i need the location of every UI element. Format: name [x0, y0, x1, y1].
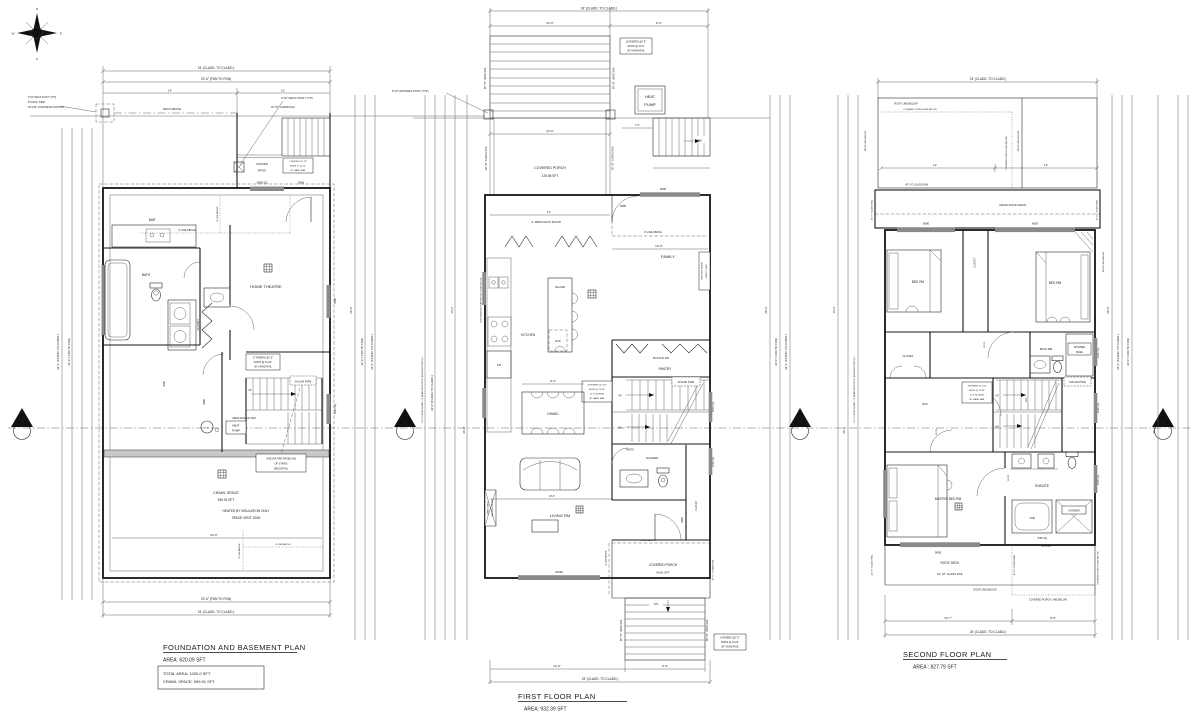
- window-band: [995, 227, 1075, 232]
- room-label-sunken: SUNKEN: [256, 162, 268, 166]
- room-label-laundry: LAUNDRY: [197, 319, 200, 331]
- roof-deck-outline: [885, 545, 1095, 595]
- speaker-icon: [588, 290, 596, 298]
- patio-stairs: [237, 118, 330, 158]
- door-tag: 3068: [298, 181, 305, 185]
- room-label-pantry: PANTRY: [659, 367, 673, 371]
- second-floor-plan: 24' (CLADD. TO CLADD.) ROOF LINE BELOW R…: [865, 77, 1105, 671]
- section-marker-a-1: A: [11, 408, 33, 440]
- dim-label: 42'-6" ( FDN TO FDN): [774, 338, 778, 365]
- window-band: [250, 187, 284, 192]
- guard-rail-label: 42" HT. GUARD RAIL: [271, 106, 296, 109]
- rear-roof-deck-label: REAR ROOF DECK: [999, 203, 1026, 207]
- speaker-icon: [264, 264, 272, 272]
- upper-stairs: [993, 380, 1062, 449]
- dim-label: 24' (CLADD. TO CLADD.): [198, 66, 235, 70]
- dim-label: 14'-7": [944, 616, 952, 620]
- window-tag: 4080 SQ: [1097, 403, 1100, 413]
- dim-label: 10'-6": [655, 244, 663, 248]
- vanity-icon: [620, 470, 648, 487]
- nano-door-panels: [505, 236, 597, 247]
- glass-rail-label: 42" HT. GLASS RAIL: [871, 554, 874, 575]
- heat-pump-label: HEAT: [645, 94, 656, 99]
- window-tag: 4030 SQ: [712, 402, 715, 412]
- fire-note: ONE HR FIRE RATED A/B: [266, 458, 296, 461]
- speaker-icon: [218, 470, 226, 478]
- section-marker-a-4: A: [1152, 408, 1174, 440]
- dim-label: 10': [281, 89, 285, 93]
- room-label-crawl-space: CRAWL SPACE: [213, 491, 239, 495]
- dim-label: 9'-6": [662, 664, 668, 668]
- crawl-note: SPACE VENT 1/500: [232, 516, 261, 520]
- window-band: [518, 575, 600, 580]
- deck-post-note: 36"X36" CONCRETE FOOTING: [28, 106, 64, 109]
- stair-note: 36" HAND RAIL: [627, 50, 645, 53]
- dim-label: 14'-2": [450, 306, 454, 313]
- window-band: [482, 388, 486, 418]
- room-label-home-theatre: HOME THEATRE: [250, 284, 282, 289]
- crawl-note: HEATED BY INSULATION ONLY: [223, 509, 271, 513]
- second-floor-area: AREA : 827.79 SFT: [913, 665, 957, 671]
- dim-label: 14'-2": [832, 306, 836, 313]
- window-band: [1094, 465, 1098, 493]
- window-tag: 5020 WINDOW STARTING AT COUNTER LVL: [480, 277, 483, 323]
- grade-lines-gap1: 28'-6" 42'-6" ( FDN TO FDN) 42'-6" (CLAD…: [349, 95, 467, 640]
- laundry-appliances: [168, 300, 212, 350]
- stair-note: RUNS @ 10.24": [290, 166, 306, 168]
- glass-rail-label: 42" HT. GLASS RAIL: [905, 184, 929, 187]
- ceiling-line-label: 8' LINE ABOVE: [275, 543, 291, 546]
- dim-label: 24' (CLADD. TO CLADD.): [581, 7, 618, 11]
- shower-base-label: BASE: [1076, 351, 1083, 354]
- room-label-living: LIVING RM: [550, 513, 570, 518]
- stair-direction: DN: [654, 603, 658, 606]
- window-band: [327, 285, 331, 318]
- area-summary-box: [158, 666, 264, 689]
- ceiling-line: [140, 196, 290, 233]
- basement-stairs: [246, 378, 322, 444]
- compass-s: S: [36, 57, 38, 61]
- dim-label: 14'-6": [546, 129, 554, 133]
- stair-note: 11.5" NOSING: [970, 395, 984, 397]
- deck-stairs: [490, 36, 610, 118]
- stair-note: 36" HAND RAIL: [969, 398, 985, 401]
- stair-note: 7 RISERS @7.75": [289, 161, 307, 163]
- window-tag: 2050 SQ: [1097, 475, 1100, 485]
- deck-post-note: 6"x6" DECK POST (TYP): [28, 96, 56, 99]
- dim-label: 51'-6" FROM CLADD. TO REAR DECK POST (BU…: [421, 357, 424, 422]
- section-marker-a-3: A: [789, 408, 811, 440]
- stair-note: RUNS @ 10.24": [721, 641, 739, 644]
- window-tag: 2030 SQ: [712, 457, 715, 467]
- porch-line-label: COVERED PORCH LINE BELOW: [1006, 135, 1008, 169]
- heat-pump-label: PUMP: [644, 102, 656, 107]
- room-label-dining: DINING: [547, 412, 559, 416]
- dim-label: 42'-6" (CLADD. TO CLADD.): [1116, 334, 1120, 370]
- room-label-wic: WIC: [922, 402, 929, 406]
- room-label-closet: CLOSET: [974, 258, 977, 268]
- roof-line-label: ROOF LINE BELOW: [1103, 251, 1105, 272]
- stair-direction: DN: [995, 426, 999, 429]
- ceiling-line: [243, 530, 323, 570]
- water-heater-label: H.W.: [205, 428, 210, 430]
- porch-line-label: COVERED PORCH LINE BELOW: [1029, 599, 1068, 602]
- dim-label: 24' (CLADD. TO CLADD.): [970, 630, 1007, 634]
- island-label: ISLAND: [555, 285, 565, 289]
- bed-icon: [887, 465, 952, 537]
- solar-pipe-label: SOLAR PIPE: [295, 380, 312, 384]
- door-tag: 2868: [681, 517, 684, 523]
- area-note: 14.13 sft: [1041, 545, 1051, 548]
- porch-area-value: 54.81 SFT: [656, 571, 669, 575]
- crawl-area: CRAWL SPACE: 399.91 SFT: [163, 679, 215, 684]
- shower-base-icon: [1066, 334, 1093, 376]
- dim-label: 24' (CLADD. TO CLADD.): [582, 677, 619, 681]
- room-label-closet: CLOSET: [902, 354, 913, 358]
- window-tag: 6050: [1032, 222, 1039, 226]
- dim-label: 14': [168, 89, 172, 93]
- window-band: [1094, 338, 1098, 366]
- room-label-mechanical: MECHANICAL RM: [232, 416, 256, 420]
- fire-note: OF STAIRS: [274, 463, 287, 466]
- stair-direction: UP: [248, 389, 252, 392]
- dim-label: 12': [1044, 163, 1048, 167]
- toilet-icon: [1052, 356, 1063, 373]
- window-band: [709, 392, 713, 422]
- window-tag: 7096 SQ: [1037, 537, 1047, 540]
- stair-note: 16 RISERS @7.44": [967, 386, 986, 388]
- solar-pipe-label: SOLAR PIPE: [678, 380, 695, 384]
- ceiling-line-label: 8' LINE ABOVE: [605, 550, 608, 566]
- dim-label: 14'-6": [553, 664, 561, 668]
- fridge-label: FR: [497, 363, 502, 367]
- dim-label: 11'-6": [550, 380, 556, 383]
- window-band: [900, 542, 980, 547]
- hand-rail-label: 36" HT. HAND RAIL: [484, 66, 487, 89]
- dim-label: 14'-6": [546, 21, 554, 25]
- dim-lines: [876, 78, 1099, 98]
- total-area: TOTAL AREA: 1020.0 SFT: [163, 671, 211, 676]
- room-label-kitchen: KITCHEN: [521, 333, 536, 337]
- window-band: [709, 448, 713, 475]
- shower-label: SHOWER: [1068, 510, 1079, 513]
- fire-note: SEE DETAIL: [274, 468, 289, 471]
- door-tag: 21070: [1008, 474, 1010, 481]
- dim-label: 42'-6" (CLADD. TO CLADD.): [370, 334, 374, 370]
- room-label-bedroom: BED RM: [1049, 281, 1062, 285]
- room-label-bar: BAR: [149, 218, 156, 222]
- heat-pump-label: PUMP: [232, 429, 240, 433]
- window-tag: 6080: [660, 187, 667, 191]
- rear-roof-deck: [875, 190, 1100, 228]
- fireplace-label: DIRECT VENT: [706, 263, 708, 278]
- door-swings: [612, 196, 638, 222]
- first-floor-plan: 24' (CLADD. TO CLADD.) 14'-6" 9'-6" 36" …: [392, 7, 770, 713]
- door-tag: 3036: [163, 381, 166, 387]
- dim-label: 42'-6" (CLADD. TO CLADD.): [784, 334, 788, 370]
- dim-label: 13'-6": [549, 495, 555, 498]
- dim-label: 24' (CLADD. TO CLADD.): [198, 610, 235, 614]
- dim-label: 9'-6": [1050, 616, 1056, 620]
- compass-n: N: [36, 7, 38, 11]
- basement-title: FOUNDATION AND BASEMENT PLAN: [163, 643, 306, 652]
- room-label-ensuite: ENSUITE: [1035, 484, 1049, 488]
- bifold-label: BI-FOLD DR: [653, 356, 669, 360]
- dim-label: 42'-6" ( FDN TO FDN): [67, 338, 71, 365]
- compass-rose-icon: N E S W: [12, 7, 62, 61]
- room-label-bath: BATH RM: [1040, 347, 1053, 351]
- dim-label: 42'-6" (CLADD. TO CLADD.): [56, 334, 60, 370]
- heat-pump-label: HEAT: [232, 424, 240, 428]
- bifold-doors: [616, 344, 707, 353]
- main-stairs: [612, 377, 710, 444]
- dining-table: [522, 384, 584, 434]
- room-label-bath: BATH: [142, 273, 151, 277]
- porch-stairs: [625, 598, 705, 660]
- glass-rail-label: 42" HT. GLASS RAIL: [937, 572, 964, 576]
- tub-label: TUB: [1029, 516, 1035, 520]
- stair-note: RUNS @ 10.24": [589, 389, 605, 391]
- glass-rail-label: 42" HT. GLASS RAIL: [871, 199, 874, 220]
- first-floor-title: FIRST FLOOR PLAN: [518, 692, 596, 701]
- window-band: [897, 227, 955, 232]
- room-label-patio: PATIO: [258, 169, 267, 173]
- section-marker-a-2: A: [394, 408, 416, 440]
- crawl-area-value: 399.91 SFT: [218, 498, 235, 502]
- kitchen-island: [548, 278, 578, 352]
- stair-note: 10 RISERS @7.5": [626, 41, 646, 44]
- window-tag: 9090: [935, 551, 942, 555]
- shower-icon: [1056, 500, 1092, 533]
- room-label-covered-porch: COVERED PORCH: [649, 563, 678, 567]
- stair-note: 11.5" NOSING: [590, 394, 604, 396]
- floor-plan-sheet: N E S W A A A A 42'-6" (CLADD. TO CLADD.…: [0, 0, 1200, 719]
- window-band: [1094, 393, 1098, 423]
- roof-deck-label: ROOF DECK: [941, 561, 961, 565]
- porch-line-label: COVERED PORCH LINE BELOW: [903, 109, 937, 111]
- roof-line-label: ROOF LINE BELOW: [865, 130, 867, 151]
- glass-rail-label: 42" HT. GLASS RAIL: [1013, 554, 1016, 575]
- room-label-master: MASTER BED RM: [935, 497, 962, 501]
- window-tag: 10090: [555, 570, 563, 574]
- basement-plan: 6"x6" DECK POST (TYP) 8"CONC. PIER 36"X3…: [28, 66, 337, 689]
- basement-area: AREA: 620.09 SFT: [163, 658, 206, 664]
- room-label-covered-porch: COVERED PORCH: [534, 166, 566, 170]
- deck-post-icon: [413, 93, 770, 119]
- deck-post-icon: [60, 104, 114, 122]
- toilet-icon: [150, 283, 162, 301]
- stair-note: 36" HAND RAIL: [589, 397, 605, 400]
- compass-e: E: [60, 32, 62, 36]
- dim-label: 42'-6" ( FDN TO FDN): [360, 338, 364, 365]
- dim-label: 28'-6": [349, 306, 353, 313]
- vanity-icon: [1030, 356, 1050, 373]
- grade-lines-gap3: 28'-6" 42'-6" (CLADD. TO CLADD.) 42'-6" …: [1106, 95, 1188, 640]
- solar-pipe-label: SOLAR PIPE: [1069, 380, 1086, 384]
- wood-post-note: 6"x6" WOODEN POST (TYP): [392, 89, 429, 93]
- guard-rail-label: 42" HT. GUARD RAIL: [485, 145, 488, 170]
- shower-closet-walls: [612, 445, 710, 540]
- window-tag: 3068 SQ: [256, 181, 268, 185]
- dim-label: 12': [933, 163, 937, 167]
- porch-line-label: COVERED PORCH LINE BELOW: [1098, 550, 1100, 584]
- door-tag: 2668: [203, 399, 206, 405]
- rear-porch: [609, 540, 710, 598]
- first-floor-area: AREA: 932.39 SFT: [524, 707, 567, 713]
- room-label-family: FAMILY: [661, 254, 675, 259]
- room-label-shower: SHOWER: [646, 456, 659, 460]
- deck-above-label: DECK ABOVE: [163, 107, 181, 111]
- window-tag: 6080: [923, 222, 930, 226]
- glass-rail-label: 42" HT. GLASS RAIL: [1096, 199, 1099, 220]
- shower-base-label: SHOWER: [1074, 346, 1085, 349]
- grade-lines-gap2: 28'-6" 42'-6" ( FDN TO FDN) 42'-6" (CLAD…: [764, 95, 858, 640]
- ceiling-line-label: 8' LINE ABOVE: [238, 543, 241, 559]
- roof-line-label: ROOF LINE BELOW: [1018, 130, 1020, 151]
- speaker-icon: [576, 506, 583, 513]
- bathtub-icon: [105, 260, 130, 340]
- fireplace-label: DBBL SIDED: [488, 501, 490, 514]
- hand-rail-label: 36" HT. HAND RAIL: [706, 618, 709, 641]
- stair-note: RUNS @ 10.24": [969, 390, 985, 392]
- stair-note: RUNS @ 10.24": [254, 361, 272, 364]
- door-swings: [184, 197, 311, 375]
- dim-label: 36'-6": [842, 426, 846, 433]
- compass-w: W: [12, 32, 15, 36]
- sink-icon: [204, 288, 230, 307]
- stair-note: 36" HAND RAIL: [290, 169, 306, 172]
- roof-outline: [878, 98, 1099, 188]
- stair-note: 17 RISERS @7.5": [253, 357, 273, 360]
- stair-note: RUNS @ 10.0": [628, 45, 645, 48]
- door-swings: [612, 448, 681, 540]
- stair-note: 16 RISERS @7.44": [587, 385, 606, 387]
- dim-label: 12': [547, 210, 551, 214]
- guard-rail-label: 42" HT. GUARD RAIL: [712, 559, 715, 581]
- hand-rail-label: 36" HT. HAND RAIL: [620, 618, 623, 641]
- speaker-icon: [955, 503, 962, 510]
- guard-rail-label: 42" HT. GUARD RAIL: [612, 145, 615, 170]
- ceiling-line-label: 9' LINE ABOVE: [178, 229, 196, 232]
- window-tag: 5068: [334, 298, 337, 304]
- dim-label: 9'-6": [656, 21, 662, 25]
- stair-direction: UP: [618, 395, 622, 398]
- dim-label: 28'-6": [1106, 306, 1110, 313]
- room-label-bedroom: BED RM: [912, 280, 925, 284]
- dishwasher-label: D/W: [555, 339, 561, 343]
- dim-label: 28'-6": [764, 306, 768, 313]
- bath-walls: [885, 332, 1095, 378]
- stair-note: 36" HAND RAIL: [254, 366, 272, 369]
- door-tag: 3080: [620, 204, 627, 208]
- dim-label: 36'-6": [1152, 426, 1156, 433]
- vanity-icon: [1010, 454, 1058, 469]
- ceiling-line-label: 9' LINE ABOVE: [216, 206, 219, 222]
- stair-note: 36" HAND RAIL: [721, 646, 739, 649]
- fireplace-label: GAS FIRE PLACE: [701, 261, 704, 280]
- roof-line-label: ROOF LINE BELOW: [973, 589, 997, 592]
- fireplace-label: GAS FIRE PLACE: [491, 498, 494, 517]
- toilet-icon: [1066, 452, 1078, 469]
- window-band: [883, 470, 887, 518]
- stair-direction: UP: [995, 395, 999, 398]
- ceiling-line-label: 8' LINE ABOVE: [640, 539, 656, 542]
- bed-icon: [1036, 232, 1093, 322]
- kitchen-counter: [487, 258, 511, 432]
- window-band: [327, 394, 331, 424]
- roof-line-label: ROOF LINE BELOW: [894, 103, 918, 106]
- dim-label: 42'-6" ( FDN TO FDN): [1126, 338, 1130, 365]
- deck-post-note: 6"x6" DECK POST (TYP): [281, 96, 313, 100]
- door-tag: 21070: [936, 428, 938, 435]
- ceiling-line-label: 8' LINE ABOVE: [644, 231, 662, 234]
- dim-label: 23'-6" (FDN TO FDN): [201, 77, 231, 81]
- stair-direction: DN: [618, 427, 622, 430]
- stair-note: 8 RISERS @7.5": [721, 637, 740, 640]
- dim-label: 7'-6": [635, 124, 640, 127]
- stair-direction: DN: [698, 140, 702, 143]
- window-band: [640, 192, 700, 197]
- dim-label: 51'-6" FROM CLADD. TO REAR DECK POST (BU…: [853, 357, 856, 422]
- hand-rail-label: 36" HT. HAND RAIL: [613, 66, 616, 89]
- second-floor-title: SECOND FLOOR PLAN: [903, 650, 991, 659]
- porch-area-value: 125.98 SFT: [542, 174, 559, 178]
- deck-post-note: 8"CONC. PIER: [28, 101, 45, 104]
- dim-label: 23'-6": [210, 533, 218, 537]
- dim-label: 23'-6" (FDN TO FDN): [201, 597, 231, 601]
- grade-lines-left: 42'-6" (CLADD. TO CLADD.) 42'-6" ( FDN T…: [56, 128, 92, 600]
- toilet-icon: [657, 468, 669, 487]
- dim-label: 36'-6": [462, 426, 466, 433]
- door-tag: 21070: [984, 341, 986, 348]
- dim-lines: [488, 8, 710, 118]
- floor-plan-drawing: N E S W A A A A 42'-6" (CLADD. TO CLADD.…: [0, 0, 1200, 719]
- dim-label: 24' (CLADD. TO CLADD.): [970, 77, 1007, 81]
- window-band: [482, 272, 486, 305]
- window-tag: 2030 SQ: [1097, 348, 1100, 358]
- heat-pump-box: [635, 86, 665, 114]
- room-label-closet: CLOSET: [695, 501, 698, 511]
- window-tag: 4030 SQ: [334, 404, 337, 414]
- dim-label: 42'-6" (CLADD. TO CLADD.): [430, 375, 434, 411]
- door-tag: 2868: [1026, 397, 1028, 403]
- nano-door-label: 3- 3080 NANO DOOR: [531, 220, 561, 224]
